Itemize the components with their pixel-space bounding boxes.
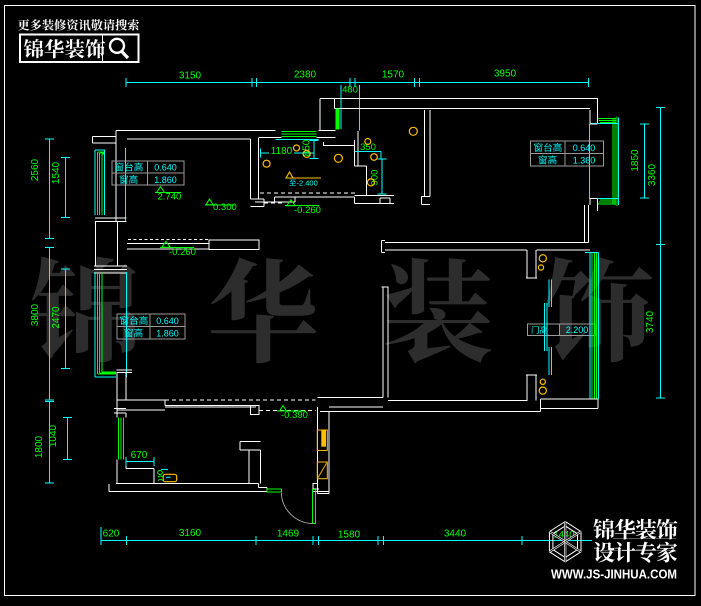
svg-text:670: 670 <box>131 450 148 461</box>
svg-text:1850: 1850 <box>630 149 641 172</box>
svg-text:3800: 3800 <box>30 303 41 326</box>
svg-text:1.360: 1.360 <box>573 156 596 166</box>
svg-text:3150: 3150 <box>179 71 202 82</box>
svg-text:480: 480 <box>342 85 358 96</box>
svg-text:0.640: 0.640 <box>154 163 177 173</box>
svg-text:2470: 2470 <box>51 306 62 329</box>
svg-text:900: 900 <box>370 170 381 186</box>
svg-text:1.860: 1.860 <box>154 175 177 185</box>
svg-text:-0.390: -0.390 <box>281 410 308 421</box>
svg-text:3950: 3950 <box>494 69 517 80</box>
svg-text:3160: 3160 <box>179 528 202 539</box>
svg-text:1469: 1469 <box>277 529 300 540</box>
svg-text:0.300: 0.300 <box>213 202 237 213</box>
svg-text:1580: 1580 <box>338 530 361 541</box>
svg-text:0.640: 0.640 <box>156 316 179 326</box>
svg-text:350: 350 <box>360 142 376 153</box>
svg-text:WWW.JS-JINHUA.COM: WWW.JS-JINHUA.COM <box>551 567 677 582</box>
svg-text:1540: 1540 <box>51 161 62 184</box>
svg-text:-0.260: -0.260 <box>169 247 196 258</box>
svg-text:3740: 3740 <box>645 310 656 333</box>
svg-text:3440: 3440 <box>444 529 467 540</box>
svg-text:-2.400: -2.400 <box>297 179 318 188</box>
svg-text:0.640: 0.640 <box>573 143 596 153</box>
svg-text:2560: 2560 <box>30 158 41 181</box>
svg-text:2.740: 2.740 <box>158 192 182 203</box>
svg-text:2380: 2380 <box>294 70 317 81</box>
svg-text:3360: 3360 <box>647 163 658 186</box>
svg-text:1040: 1040 <box>48 424 59 447</box>
svg-text:2.200: 2.200 <box>566 325 589 335</box>
svg-text:-0.260: -0.260 <box>294 205 321 216</box>
svg-text:1800: 1800 <box>34 435 45 458</box>
svg-text:1570: 1570 <box>382 70 405 81</box>
svg-text:620: 620 <box>103 529 120 540</box>
svg-text:1180: 1180 <box>271 146 293 157</box>
svg-text:1.860: 1.860 <box>156 329 179 339</box>
